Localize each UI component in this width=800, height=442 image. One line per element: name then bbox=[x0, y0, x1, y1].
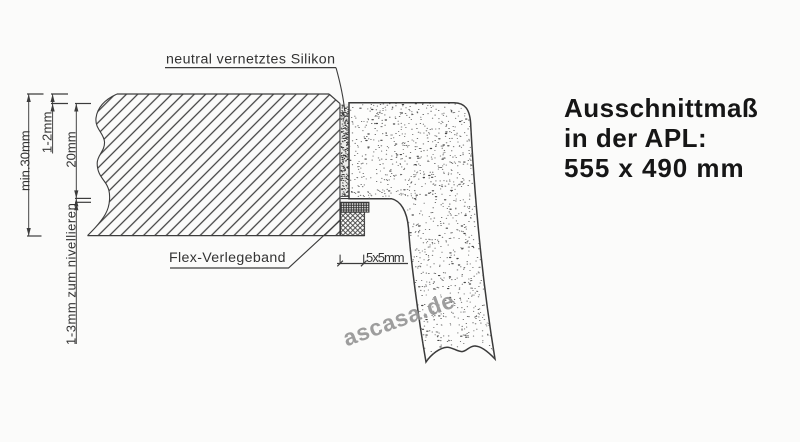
svg-text:555 x 490 mm: 555 x 490 mm bbox=[564, 153, 745, 183]
svg-text:Flex-Verlegeband: Flex-Verlegeband bbox=[169, 250, 286, 266]
svg-text:1-2mm: 1-2mm bbox=[40, 111, 55, 153]
svg-text:Ausschnittmaß: Ausschnittmaß bbox=[564, 93, 758, 123]
svg-text:in der APL:: in der APL: bbox=[564, 123, 707, 153]
svg-text:5x5mm: 5x5mm bbox=[366, 250, 404, 265]
svg-text:20mm: 20mm bbox=[64, 131, 79, 167]
svg-text:neutral vernetztes Silikon: neutral vernetztes Silikon bbox=[166, 52, 335, 68]
svg-text:min.30mm: min.30mm bbox=[18, 130, 33, 191]
svg-text:1-3mm zum nivellieren: 1-3mm zum nivellieren bbox=[64, 203, 79, 345]
